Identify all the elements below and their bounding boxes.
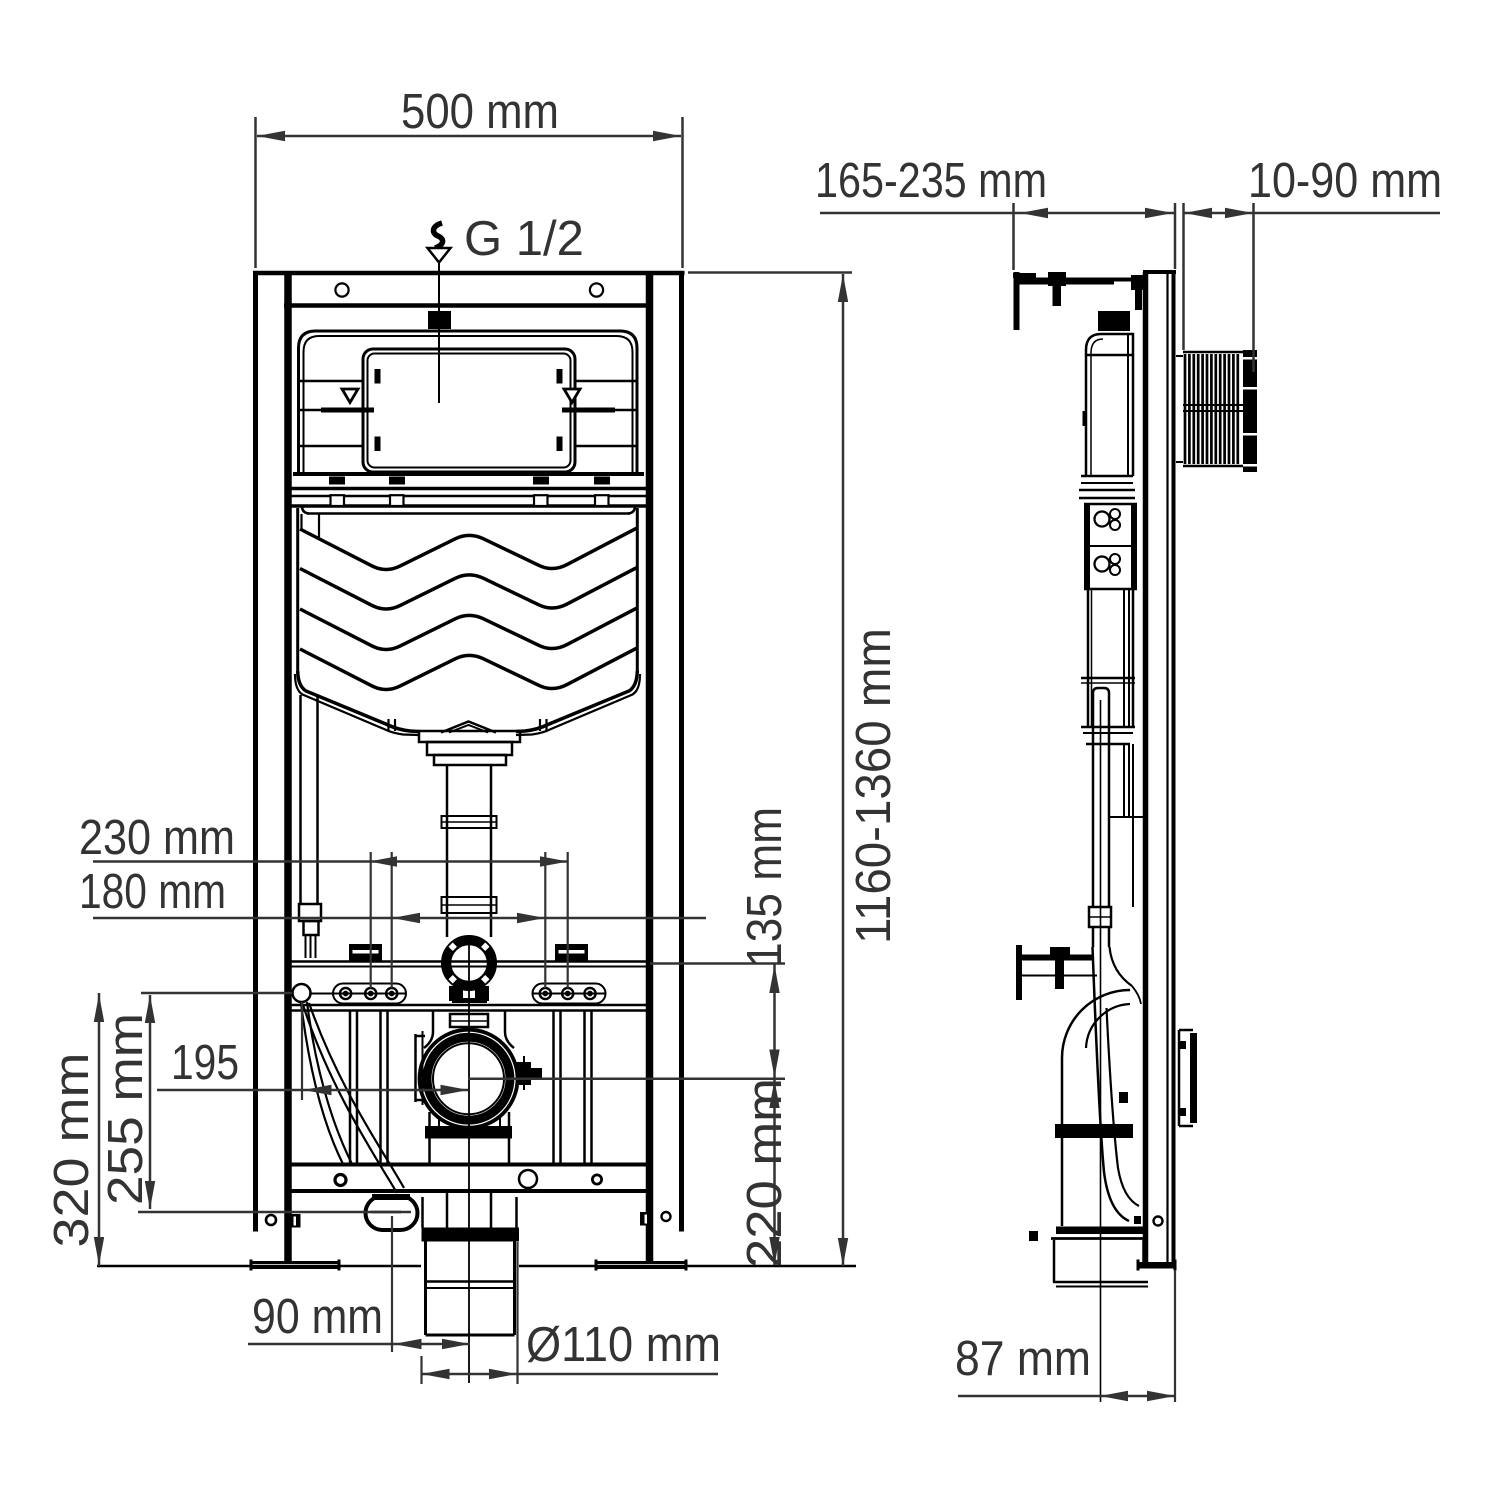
svg-text:320 mm: 320 mm [45, 1053, 99, 1248]
svg-text:195: 195 [171, 1036, 239, 1090]
svg-text:135 mm: 135 mm [738, 807, 792, 967]
svg-text:165-235 mm: 165-235 mm [815, 154, 1047, 208]
svg-text:87 mm: 87 mm [955, 1332, 1091, 1386]
svg-text:500 mm: 500 mm [401, 85, 559, 139]
svg-text:Ø110 mm: Ø110 mm [526, 1318, 721, 1372]
svg-text:10-90 mm: 10-90 mm [1248, 154, 1442, 208]
svg-text:220 mm: 220 mm [738, 1078, 792, 1268]
svg-text:180 mm: 180 mm [79, 865, 226, 919]
svg-text:G 1/2: G 1/2 [464, 212, 584, 266]
svg-text:90 mm: 90 mm [252, 1290, 383, 1344]
svg-text:230 mm: 230 mm [79, 811, 235, 865]
svg-text:255 mm: 255 mm [99, 1013, 153, 1205]
svg-text:1160-1360 mm: 1160-1360 mm [847, 628, 901, 944]
